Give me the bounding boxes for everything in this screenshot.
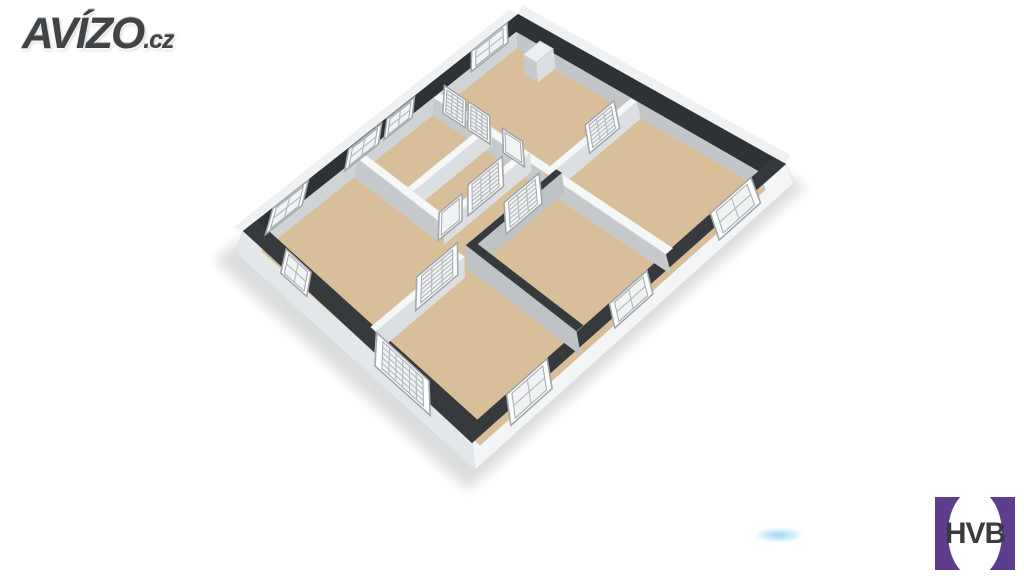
hvb-logo-circle: HVB: [948, 497, 1002, 570]
avizo-logo-suffix: .cz: [143, 26, 173, 54]
blue-smudge-watermark: [756, 528, 802, 542]
hvb-logo: HVB: [935, 497, 1015, 570]
floorplan-3d: [0, 0, 1024, 576]
avizo-logo-text: AVÍZO: [22, 9, 143, 58]
hvb-logo-text: HVB: [945, 519, 1005, 549]
listing-image: AVÍZO.cz HVB: [0, 0, 1024, 576]
avizo-watermark-logo: AVÍZO.cz: [22, 8, 174, 60]
